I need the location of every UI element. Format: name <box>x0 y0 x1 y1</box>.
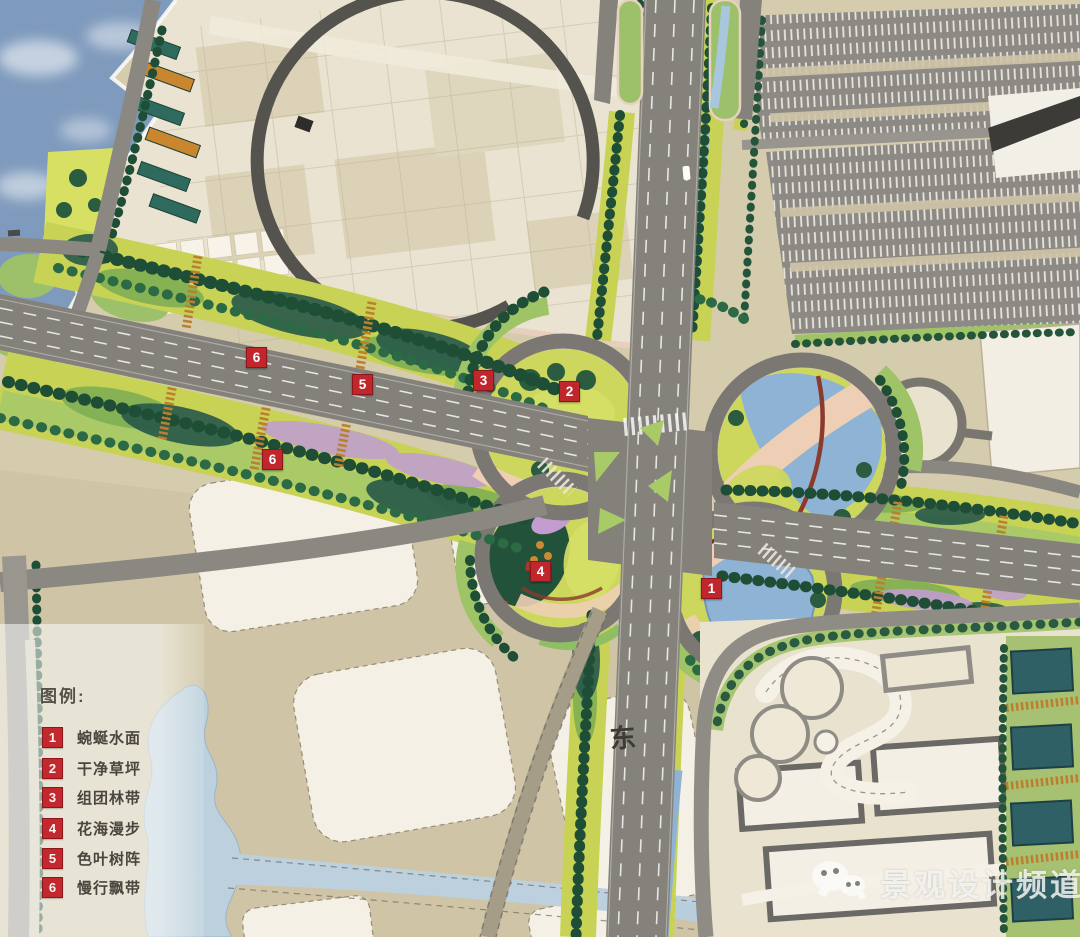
legend-num-6: 6 <box>42 877 63 898</box>
legend-item: 2 干净草坪 <box>42 758 141 779</box>
map-marker-5: 5 <box>352 374 373 395</box>
wechat-icon <box>812 856 870 908</box>
legend-item: 1 蜿蜒水面 <box>42 727 141 748</box>
legend-num-4: 4 <box>42 818 63 839</box>
map-marker-1: 1 <box>701 578 722 599</box>
legend-label-4: 花海漫步 <box>77 818 141 839</box>
legend-item: 3 组团林带 <box>42 787 141 808</box>
legend-num-2: 2 <box>42 758 63 779</box>
legend-label-6: 慢行飘带 <box>77 877 141 898</box>
map-marker-2: 2 <box>559 381 580 402</box>
legend-title: 图例: <box>40 682 86 707</box>
map-marker-4: 4 <box>530 561 551 582</box>
legend-label-1: 蜿蜒水面 <box>77 727 141 748</box>
legend-item: 6 慢行飘带 <box>42 877 141 898</box>
legend-item: 4 花海漫步 <box>42 818 141 839</box>
legend-num-3: 3 <box>42 787 63 808</box>
watermark: 景观设计频道 <box>812 856 1080 908</box>
map-marker-6: 6 <box>246 347 267 368</box>
legend-item: 5 色叶树阵 <box>42 848 141 869</box>
parking-lots <box>740 4 1080 340</box>
east-label: 东 <box>609 722 637 754</box>
landscape-master-plan: 东 图例: 1 蜿蜒水面 2 干净草坪 3 组团林带 4 花海漫步 5 色叶树阵… <box>0 0 1080 937</box>
map-marker-3: 3 <box>473 370 494 391</box>
legend-label-5: 色叶树阵 <box>77 848 141 869</box>
watermark-text: 景观设计频道 <box>880 860 1080 905</box>
legend-num-1: 1 <box>42 727 63 748</box>
legend-label-3: 组团林带 <box>77 787 141 808</box>
legend-label-2: 干净草坪 <box>77 758 141 779</box>
legend-num-5: 5 <box>42 848 63 869</box>
car <box>682 166 690 181</box>
map-marker-6b: 6 <box>262 449 283 470</box>
